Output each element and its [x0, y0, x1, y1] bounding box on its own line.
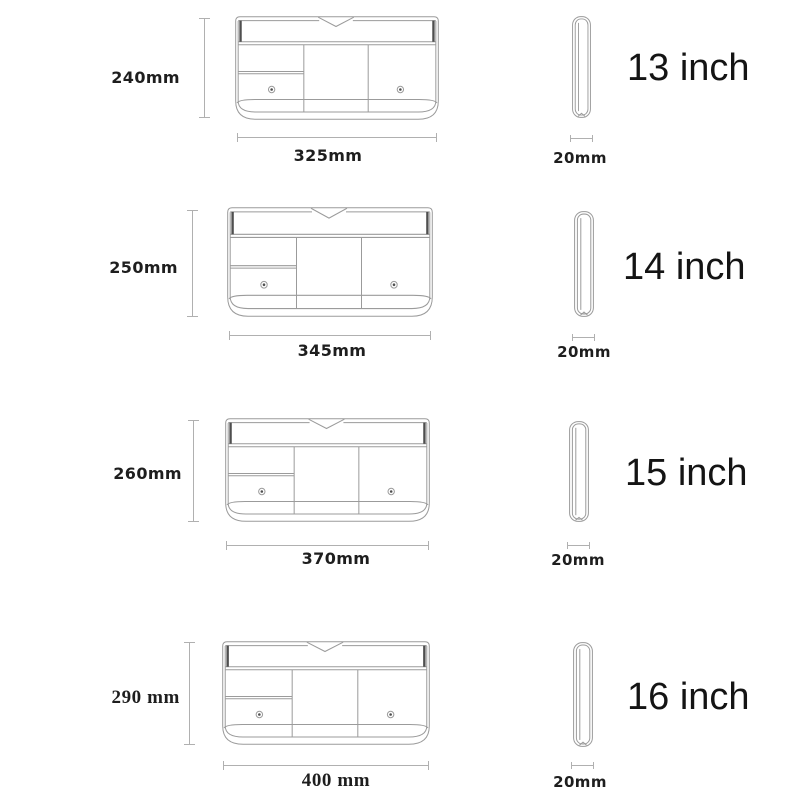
height-dimension-label: 260mm: [92, 464, 182, 483]
size-name-label: 13 inch: [627, 49, 750, 87]
size-name-label: 14 inch: [623, 248, 746, 286]
width-dimension-label: 325mm: [268, 146, 388, 165]
depth-dimension-line: [567, 545, 590, 546]
width-dimension-line: [229, 335, 431, 336]
depth-dimension-line: [570, 138, 593, 139]
width-dimension-line: [237, 137, 437, 138]
height-dimension-label: 250mm: [88, 258, 178, 277]
depth-dimension-label: 20mm: [530, 773, 630, 791]
side-view-drawing: [573, 642, 593, 747]
height-dimension-label: 290 mm: [90, 687, 180, 708]
front-view-drawing: [225, 418, 430, 522]
width-dimension-label: 345mm: [272, 341, 392, 360]
depth-dimension-label: 20mm: [528, 551, 628, 569]
depth-dimension-label: 20mm: [530, 149, 630, 167]
size-name-label: 15 inch: [625, 454, 748, 492]
width-dimension-line: [226, 545, 429, 546]
height-dimension-line: [192, 210, 193, 317]
width-dimension-label: 370mm: [276, 549, 396, 568]
width-dimension-label: 400 mm: [276, 770, 396, 791]
height-dimension-line: [189, 642, 190, 745]
depth-dimension-line: [571, 765, 594, 766]
laptop-sleeve-size-chart: 240mm 325mm 20mm 13 inch 250mm 345mm 20m…: [0, 0, 800, 800]
depth-dimension-line: [572, 337, 595, 338]
height-dimension-line: [204, 18, 205, 118]
front-view-drawing: [222, 641, 430, 745]
front-view-drawing: [227, 207, 433, 317]
front-view-drawing: [235, 16, 439, 120]
depth-dimension-label: 20mm: [534, 343, 634, 361]
width-dimension-line: [223, 765, 429, 766]
size-name-label: 16 inch: [627, 678, 750, 716]
height-dimension-line: [193, 420, 194, 522]
height-dimension-label: 240mm: [90, 68, 180, 87]
side-view-drawing: [574, 211, 594, 317]
side-view-drawing: [569, 421, 589, 522]
side-view-drawing: [572, 16, 591, 118]
